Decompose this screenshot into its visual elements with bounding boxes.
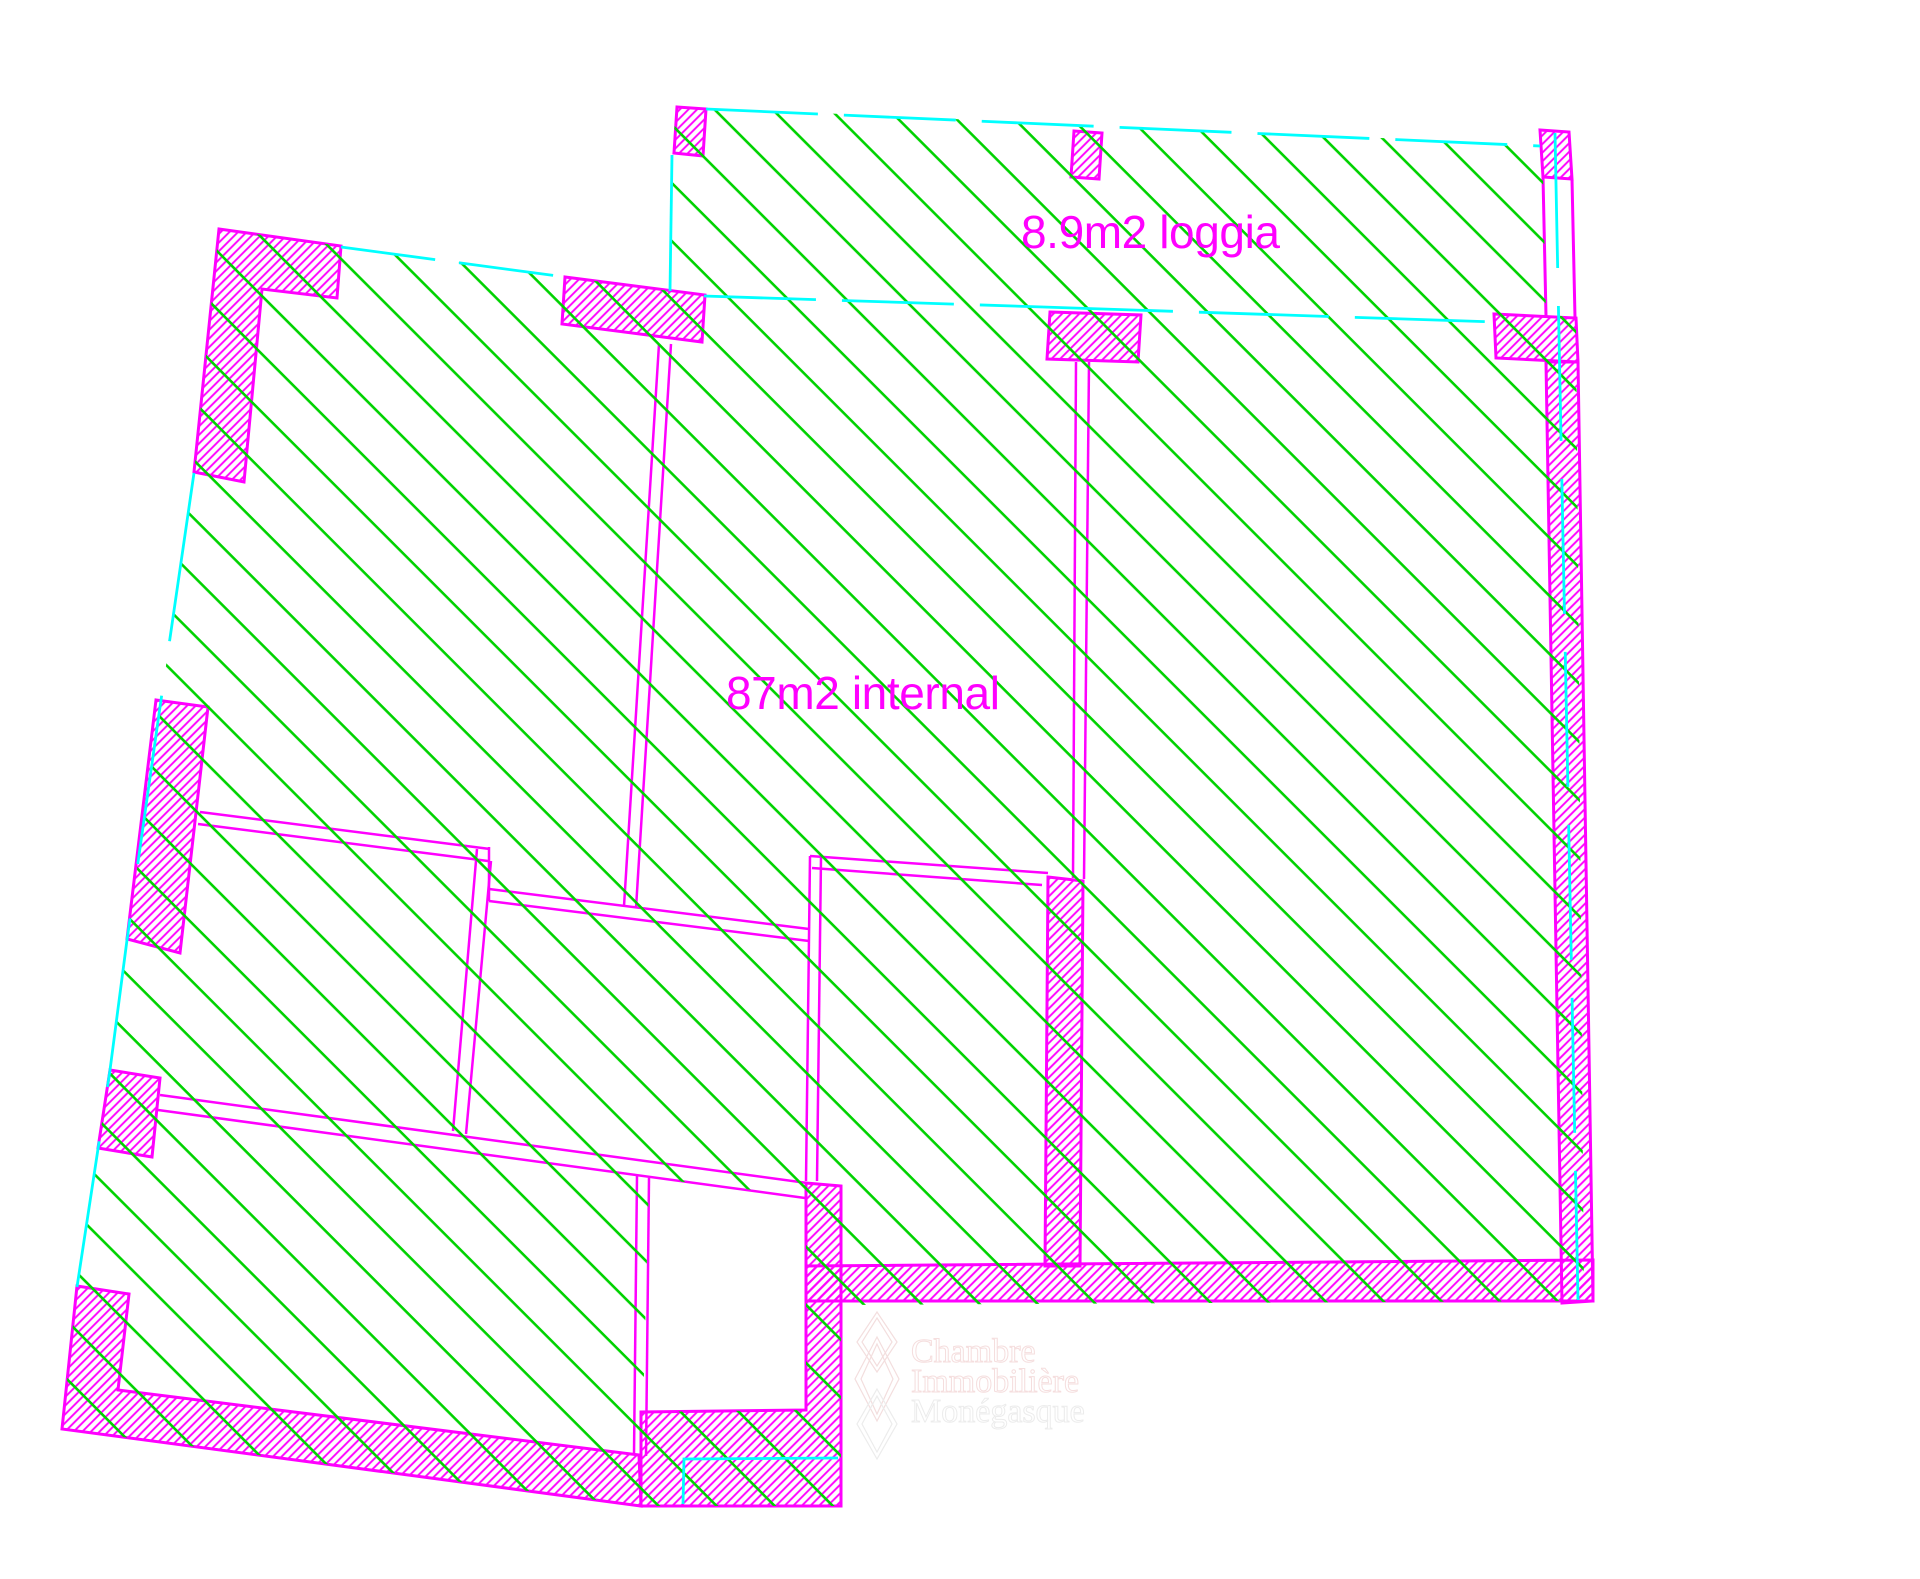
svg-text:87m2 internal: 87m2 internal [726, 667, 1000, 719]
svg-text:8.9m2 loggia: 8.9m2 loggia [1021, 206, 1280, 258]
svg-text:Monégasque: Monégasque [911, 1393, 1085, 1430]
